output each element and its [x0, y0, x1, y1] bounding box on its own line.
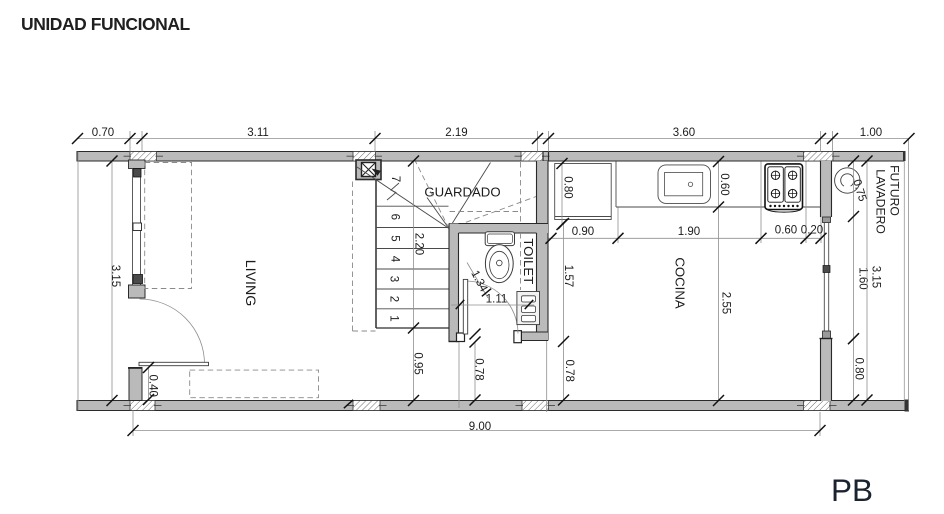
- svg-text:1.90: 1.90: [678, 226, 700, 238]
- svg-text:5: 5: [388, 235, 400, 241]
- svg-text:2.55: 2.55: [719, 292, 731, 314]
- svg-text:0.20: 0.20: [801, 224, 823, 236]
- svg-text:PB: PB: [831, 472, 873, 508]
- svg-text:4: 4: [388, 256, 400, 263]
- svg-text:1: 1: [387, 315, 399, 321]
- svg-text:TOILET: TOILET: [521, 238, 536, 284]
- svg-text:7: 7: [389, 176, 401, 182]
- svg-text:0.78: 0.78: [472, 358, 484, 380]
- svg-text:2: 2: [387, 296, 399, 302]
- svg-text:0.60: 0.60: [775, 224, 797, 236]
- svg-text:0.95: 0.95: [411, 352, 423, 374]
- svg-text:0.80: 0.80: [561, 176, 573, 198]
- svg-text:3: 3: [387, 276, 399, 282]
- svg-text:0.70: 0.70: [92, 127, 114, 139]
- svg-text:0.90: 0.90: [572, 226, 594, 238]
- svg-text:GUARDADO: GUARDADO: [424, 184, 500, 199]
- svg-text:0.60: 0.60: [718, 173, 730, 195]
- svg-text:COCINA: COCINA: [673, 257, 688, 308]
- svg-text:0.40: 0.40: [146, 375, 158, 397]
- svg-text:UNIDAD FUNCIONAL: UNIDAD FUNCIONAL: [21, 14, 191, 34]
- svg-text:0.78: 0.78: [563, 360, 575, 382]
- svg-text:FUTURO: FUTURO: [888, 165, 902, 216]
- svg-text:6: 6: [388, 214, 400, 220]
- svg-text:1.11: 1.11: [486, 294, 508, 306]
- svg-text:3.11: 3.11: [247, 127, 269, 139]
- svg-text:LAVADERO: LAVADERO: [873, 169, 887, 234]
- svg-text:3.15: 3.15: [109, 265, 121, 287]
- svg-text:1.57: 1.57: [562, 265, 574, 287]
- svg-text:9.00: 9.00: [469, 421, 491, 433]
- svg-text:0.80: 0.80: [852, 358, 864, 380]
- svg-text:3.60: 3.60: [673, 127, 695, 139]
- svg-text:2.20: 2.20: [412, 233, 424, 255]
- svg-text:3.15: 3.15: [869, 266, 881, 288]
- svg-text:2.19: 2.19: [445, 127, 467, 139]
- svg-text:LIVING: LIVING: [242, 260, 258, 307]
- svg-text:1.00: 1.00: [860, 127, 882, 139]
